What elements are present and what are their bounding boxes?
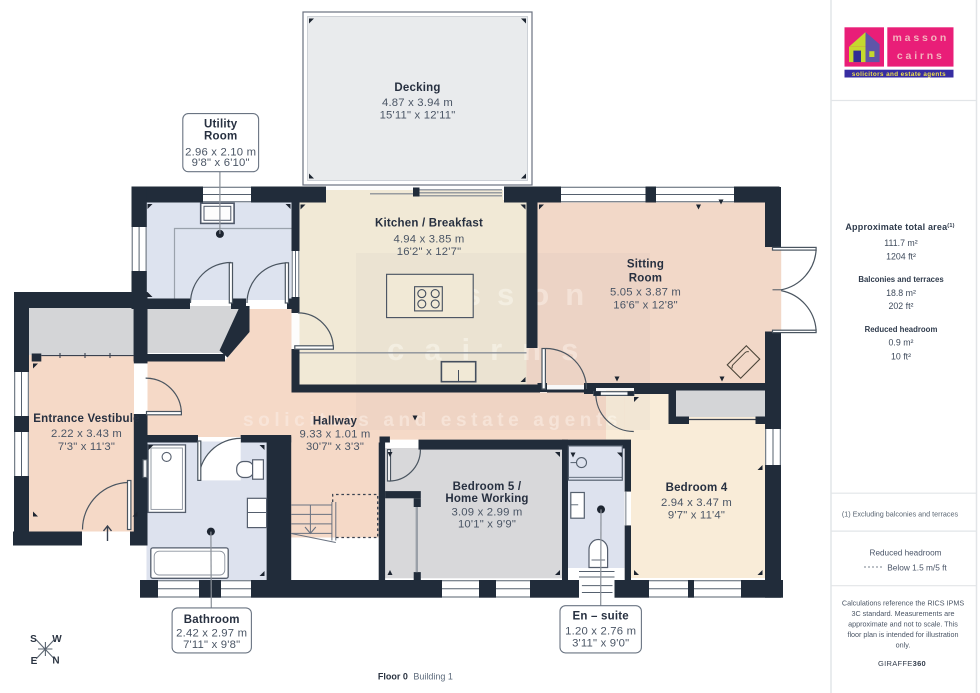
svg-text:0.9 m²: 0.9 m² xyxy=(889,338,914,348)
svg-text:15'11" x 12'11": 15'11" x 12'11" xyxy=(380,110,456,122)
svg-text:10 ft²: 10 ft² xyxy=(891,352,911,362)
svg-text:Decking: Decking xyxy=(394,82,440,94)
svg-text:7'3" x 11'3": 7'3" x 11'3" xyxy=(58,441,115,453)
svg-text:Hallway: Hallway xyxy=(313,416,358,428)
svg-text:Bedroom 4: Bedroom 4 xyxy=(666,482,728,494)
svg-text:16'6" x 12'8": 16'6" x 12'8" xyxy=(613,300,678,312)
svg-text:30'7" x 3'3": 30'7" x 3'3" xyxy=(306,441,364,453)
svg-text:Entrance Vestibule: Entrance Vestibule xyxy=(33,413,140,425)
svg-text:Room: Room xyxy=(629,273,662,285)
svg-text:cairns: cairns xyxy=(387,332,598,367)
svg-text:Home Working: Home Working xyxy=(445,493,528,505)
svg-text:approximate and not to scale.: approximate and not to scale. This xyxy=(848,620,958,629)
svg-text:1.20 x 2.76 m: 1.20 x 2.76 m xyxy=(565,626,636,638)
svg-text:Reduced headroom: Reduced headroom xyxy=(870,549,942,558)
svg-text:floor plan is intended for ill: floor plan is intended for illustration xyxy=(847,630,958,639)
svg-text:masson: masson xyxy=(893,32,949,44)
svg-text:Approximate total area(1): Approximate total area(1) xyxy=(845,222,954,232)
svg-text:cairns: cairns xyxy=(897,50,945,62)
svg-text:3'11" x 9'0": 3'11" x 9'0" xyxy=(572,638,629,650)
svg-text:16'2" x 12'7": 16'2" x 12'7" xyxy=(397,246,462,258)
svg-text:18.8 m²: 18.8 m² xyxy=(886,288,916,298)
svg-text:W: W xyxy=(52,634,62,645)
svg-text:9'8" x 6'10": 9'8" x 6'10" xyxy=(192,157,250,169)
svg-text:7'11" x 9'8": 7'11" x 9'8" xyxy=(183,639,240,651)
svg-text:Calculations reference the RIC: Calculations reference the RICS IPMS xyxy=(842,599,964,608)
svg-text:solicitors and estate agents: solicitors and estate agents xyxy=(852,71,946,78)
svg-text:202 ft²: 202 ft² xyxy=(889,301,914,311)
svg-text:Sitting: Sitting xyxy=(627,259,664,271)
svg-text:only.: only. xyxy=(896,641,911,650)
svg-text:(1) Excluding balconies and te: (1) Excluding balconies and terraces xyxy=(842,510,959,519)
svg-text:Utility: Utility xyxy=(204,119,238,131)
svg-text:2.42 x 2.97 m: 2.42 x 2.97 m xyxy=(176,628,247,640)
svg-text:Building 1: Building 1 xyxy=(413,672,453,682)
svg-text:En – suite: En – suite xyxy=(573,611,629,623)
svg-text:Balconies and terraces: Balconies and terraces xyxy=(858,275,944,284)
svg-text:2.94 x 3.47 m: 2.94 x 3.47 m xyxy=(661,497,732,509)
svg-text:Reduced headroom: Reduced headroom xyxy=(865,325,938,334)
svg-text:4.94 x 3.85 m: 4.94 x 3.85 m xyxy=(393,234,464,246)
svg-text:9.33 x 1.01 m: 9.33 x 1.01 m xyxy=(299,429,370,441)
svg-text:Bathroom: Bathroom xyxy=(184,614,240,626)
svg-text:Bedroom 5 /: Bedroom 5 / xyxy=(453,481,522,493)
svg-text:1204 ft²: 1204 ft² xyxy=(886,252,916,262)
svg-text:3C standard. Measurements are: 3C standard. Measurements are xyxy=(851,609,954,618)
svg-text:Below 1.5 m/5 ft: Below 1.5 m/5 ft xyxy=(887,562,947,572)
svg-text:Room: Room xyxy=(204,131,237,143)
svg-text:GIRAFFE360: GIRAFFE360 xyxy=(878,659,926,668)
svg-text:S: S xyxy=(30,634,37,645)
svg-text:5.05 x 3.87 m: 5.05 x 3.87 m xyxy=(610,287,681,299)
svg-text:Kitchen / Breakfast: Kitchen / Breakfast xyxy=(375,218,483,230)
svg-text:Floor 0: Floor 0 xyxy=(378,672,408,682)
svg-text:4.87 x 3.94 m: 4.87 x 3.94 m xyxy=(382,97,453,109)
svg-text:10'1" x 9'9": 10'1" x 9'9" xyxy=(458,519,516,531)
svg-text:3.09 x 2.99 m: 3.09 x 2.99 m xyxy=(451,507,522,519)
svg-text:E: E xyxy=(31,656,38,667)
svg-text:N: N xyxy=(52,656,59,667)
svg-text:111.7 m²: 111.7 m² xyxy=(884,238,917,248)
svg-text:9'7" x 11'4": 9'7" x 11'4" xyxy=(668,510,725,522)
svg-text:2.22 x 3.43 m: 2.22 x 3.43 m xyxy=(51,428,122,440)
